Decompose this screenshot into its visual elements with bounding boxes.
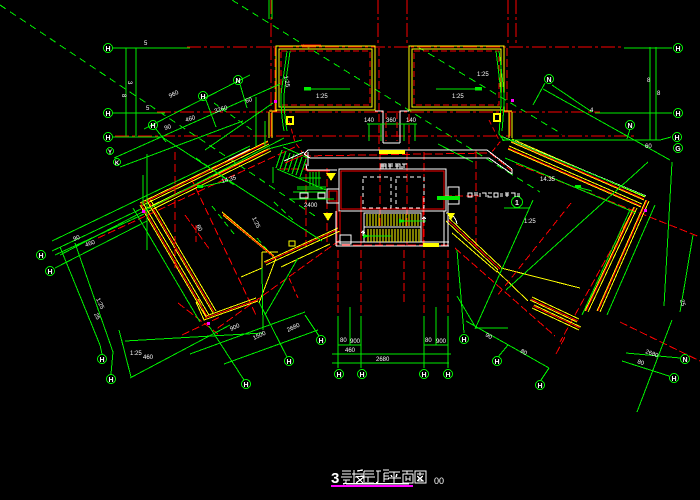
svg-text:H: H — [445, 372, 450, 379]
svg-text:1:25: 1:25 — [316, 94, 328, 100]
svg-text:460: 460 — [143, 355, 154, 361]
svg-text:N: N — [546, 77, 551, 84]
svg-text:1:25: 1:25 — [524, 219, 536, 225]
svg-text:H: H — [336, 372, 341, 379]
svg-text:H: H — [105, 135, 110, 142]
svg-text:H: H — [200, 94, 205, 101]
svg-text:N: N — [682, 357, 687, 364]
svg-text:1:25: 1:25 — [130, 351, 142, 357]
svg-text:900: 900 — [350, 339, 361, 345]
svg-text:H: H — [105, 46, 110, 53]
svg-text:H: H — [243, 382, 248, 389]
svg-text:H: H — [108, 377, 113, 384]
svg-text:N: N — [235, 78, 240, 85]
svg-text:H: H — [537, 383, 542, 390]
svg-text:2400: 2400 — [304, 203, 318, 209]
svg-text:140: 140 — [406, 118, 417, 124]
svg-text:H: H — [494, 359, 499, 366]
svg-text:H: H — [359, 372, 364, 379]
svg-text:140: 140 — [364, 118, 375, 124]
svg-text:80: 80 — [340, 338, 347, 344]
svg-text:H: H — [99, 357, 104, 364]
svg-text:K: K — [115, 161, 120, 167]
svg-text:Y: Y — [108, 150, 112, 156]
svg-text:N: N — [627, 123, 632, 130]
svg-text:1: 1 — [515, 200, 519, 207]
svg-text:H: H — [674, 135, 679, 142]
svg-text:H: H — [461, 337, 466, 344]
svg-text:H: H — [286, 359, 291, 366]
svg-text:00: 00 — [434, 476, 444, 486]
svg-text:14.35: 14.35 — [540, 177, 556, 183]
svg-text:3: 3 — [331, 470, 339, 487]
svg-text:H: H — [318, 338, 323, 345]
svg-text:60: 60 — [645, 144, 652, 150]
svg-text:H: H — [675, 46, 680, 53]
svg-text:H: H — [421, 372, 426, 379]
svg-text:900: 900 — [436, 339, 447, 345]
svg-text:460: 460 — [345, 348, 356, 354]
svg-text:1:25: 1:25 — [477, 72, 489, 78]
svg-text:H: H — [47, 269, 52, 276]
svg-text:G: G — [675, 146, 681, 153]
svg-text:2680: 2680 — [376, 357, 390, 363]
svg-text:H: H — [105, 111, 110, 118]
svg-text:H: H — [150, 123, 155, 130]
svg-text:H: H — [675, 111, 680, 118]
svg-text:360: 360 — [386, 118, 397, 124]
svg-text:80: 80 — [425, 338, 432, 344]
svg-text:H: H — [38, 253, 43, 260]
svg-text:1:25: 1:25 — [452, 94, 464, 100]
svg-text:H: H — [671, 376, 676, 383]
